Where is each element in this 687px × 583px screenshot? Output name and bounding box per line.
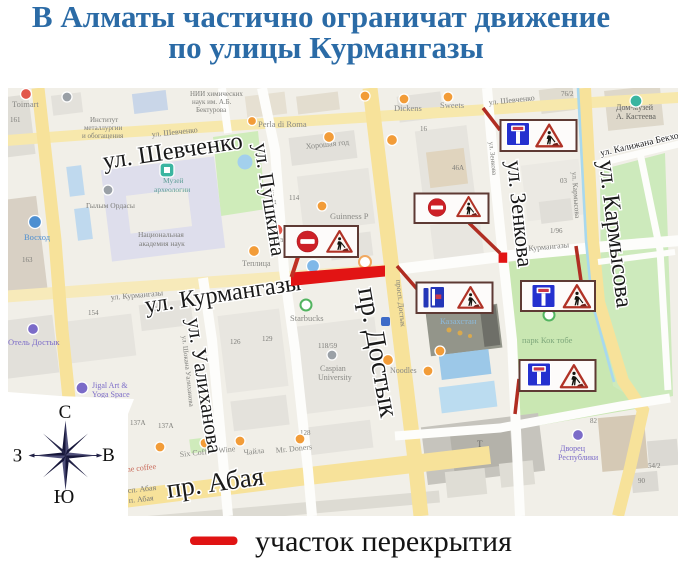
svg-text:137А: 137А xyxy=(158,422,174,430)
svg-text:С: С xyxy=(59,402,72,423)
svg-text:Восход: Восход xyxy=(24,232,51,242)
svg-text:Starbucks: Starbucks xyxy=(290,313,324,323)
svg-text:Гылым Ордасы: Гылым Ордасы xyxy=(86,201,135,210)
svg-text:А. Кастеева: А. Кастеева xyxy=(616,112,656,121)
svg-text:участок перекрытия: участок перекрытия xyxy=(255,525,512,558)
svg-text:Республики: Республики xyxy=(558,453,599,462)
svg-text:Дворец: Дворец xyxy=(560,444,586,453)
svg-text:Бектурова: Бектурова xyxy=(196,106,227,114)
svg-text:академия наук: академия наук xyxy=(139,239,185,248)
svg-text:82: 82 xyxy=(590,417,598,425)
svg-text:114: 114 xyxy=(289,194,300,202)
svg-text:16: 16 xyxy=(420,125,428,133)
svg-text:Caspian: Caspian xyxy=(320,364,346,373)
svg-text:163: 163 xyxy=(22,256,33,264)
svg-text:118/59: 118/59 xyxy=(318,342,338,350)
svg-text:Национальная: Национальная xyxy=(138,230,184,239)
svg-text:76/2: 76/2 xyxy=(561,90,574,98)
svg-text:90: 90 xyxy=(638,477,646,485)
svg-text:Yoga Space: Yoga Space xyxy=(92,390,130,399)
svg-text:Теплица: Теплица xyxy=(242,259,271,268)
svg-text:154: 154 xyxy=(88,309,99,317)
svg-text:137А: 137А xyxy=(130,419,146,427)
svg-text:Sweets: Sweets xyxy=(440,100,464,110)
svg-text:Dickens: Dickens xyxy=(394,103,422,113)
svg-text:126: 126 xyxy=(230,338,241,346)
svg-text:металлургии: металлургии xyxy=(84,124,122,132)
svg-text:Ю: Ю xyxy=(54,486,75,508)
svg-text:В: В xyxy=(102,445,115,466)
svg-text:129: 129 xyxy=(262,335,273,343)
svg-text:03: 03 xyxy=(560,177,568,185)
svg-text:Guinness P: Guinness P xyxy=(330,211,369,221)
svg-text:46А: 46А xyxy=(452,164,464,172)
svg-text:Т: Т xyxy=(477,439,483,449)
svg-text:54/2: 54/2 xyxy=(648,462,661,470)
svg-text:Toimart: Toimart xyxy=(12,99,39,109)
svg-text:по улицы Курмангазы: по улицы Курмангазы xyxy=(168,30,483,65)
svg-text:парк Кок тобе: парк Кок тобе xyxy=(522,335,573,345)
svg-text:Отель Достык: Отель Достык xyxy=(8,337,60,347)
svg-text:Jigal Art &: Jigal Art & xyxy=(92,381,128,390)
svg-text:наук им. А.Б.: наук им. А.Б. xyxy=(192,98,232,106)
svg-text:и обогащения: и обогащения xyxy=(82,132,124,140)
svg-text:1/96: 1/96 xyxy=(550,227,563,235)
svg-text:З: З xyxy=(13,446,23,467)
svg-text:Perla di Roma: Perla di Roma xyxy=(258,119,307,129)
svg-text:161: 161 xyxy=(10,116,21,124)
svg-text:В Алматы частично ограничат дв: В Алматы частично ограничат движение xyxy=(32,0,610,34)
svg-text:Институт: Институт xyxy=(90,116,118,124)
svg-text:НИИ химических: НИИ химических xyxy=(190,90,243,98)
svg-text:University: University xyxy=(318,373,352,382)
svg-text:Казахстан: Казахстан xyxy=(440,316,477,326)
svg-text:археологии: археологии xyxy=(154,185,190,194)
